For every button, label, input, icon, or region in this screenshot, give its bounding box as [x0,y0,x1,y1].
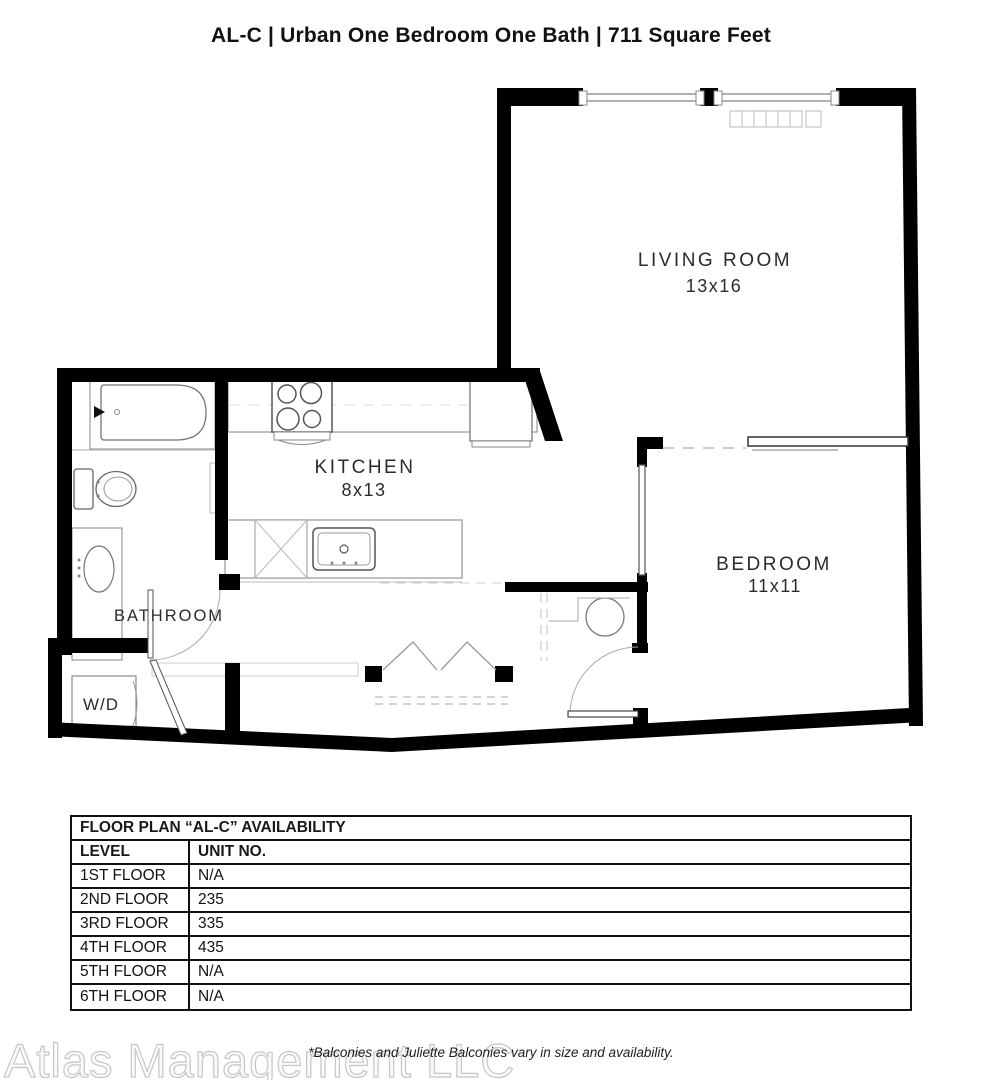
heater-box [806,111,821,127]
kitchen-sink-basin [318,533,370,565]
footnote-text: *Balconies and Juliette Balconies vary i… [0,1045,982,1060]
hall-shelf [152,663,358,676]
table-row: 5TH FLOOR N/A [72,961,910,985]
wall-vestibule-right [637,592,647,647]
level-cell: 2ND FLOOR [72,889,190,911]
toilet-bowl-inner [104,477,132,501]
stove-front-curve [278,440,326,445]
unit-cell: 335 [190,913,910,935]
bathroom-label: BATHROOM [114,607,224,625]
vanity-dot [78,567,81,570]
wall-bath-bottom [48,638,148,653]
stove [272,377,332,432]
window-cap [579,91,587,105]
wall-lr-left [497,88,511,368]
refrigerator [470,377,532,441]
entry-door-swing [570,647,638,715]
availability-table: FLOOR PLAN “AL-C” AVAILABILITY LEVEL UNI… [70,815,912,1011]
unit-cell: 235 [190,889,910,911]
window-cap [831,91,839,105]
wall-door-jamb [632,643,648,653]
living-room-label: LIVING ROOM [638,250,792,271]
column-header-level: LEVEL [72,841,190,863]
kitchen-label: KITCHEN [315,457,416,478]
toilet-bolt [97,495,100,498]
wall-bedroom-left-upper [637,445,647,467]
stove-front [274,432,330,440]
level-cell: 1ST FLOOR [72,865,190,887]
entry-wall-lines [549,598,630,621]
unit-cell: 435 [190,937,910,959]
wall-vestibule-top [505,582,648,592]
unit-cell: N/A [190,985,910,1009]
window-cap [696,91,704,105]
table-title: FLOOR PLAN “AL-C” AVAILABILITY [72,819,346,837]
water-heater [586,598,624,636]
kitchen-dims: 8x13 [341,480,386,500]
level-cell: 4TH FLOOR [72,937,190,959]
entry-door-leaf [568,711,638,717]
living-room-dims: 13x16 [686,276,743,296]
bathtub [101,385,206,440]
refrigerator-handle [472,441,530,447]
wall-bedroom-left-mid [637,573,647,595]
vanity-basin [84,546,114,592]
wall-bath-kitchen-divider [215,368,228,560]
level-cell: 3RD FLOOR [72,913,190,935]
vanity-dot [78,559,81,562]
table-row: 6TH FLOOR N/A [72,985,910,1009]
room-labels: LIVING ROOM 13x16 KITCHEN 8x13 BEDROOM 1… [83,250,832,714]
table-row: 4TH FLOOR 435 [72,937,910,961]
table-title-row: FLOOR PLAN “AL-C” AVAILABILITY [72,817,910,841]
table-header-row: LEVEL UNIT NO. [72,841,910,865]
level-cell: 6TH FLOOR [72,985,190,1009]
unit-cell: N/A [190,961,910,983]
window-cap [714,91,722,105]
wall-right [902,88,923,726]
table-row: 1ST FLOOR N/A [72,865,910,889]
toilet-tank [74,469,93,509]
bedroom-glass-panel [639,465,645,575]
faucet-dot [331,562,334,565]
wall-stub-bifold-right [495,666,513,682]
level-cell: 5TH FLOOR [72,961,190,983]
bifold-door [441,642,496,670]
bifold-door [383,642,437,670]
table-row: 3RD FLOOR 335 [72,913,910,937]
faucet-dot [355,562,358,565]
wall-stub-bifold-left [365,666,382,682]
vanity-dot [78,575,81,578]
wall-stub-bath-door [219,574,240,590]
flyer-page: AL-C | Urban One Bedroom One Bath | 711 … [0,0,982,1080]
bathroom-door-swing [150,590,220,660]
faucet-dot [343,562,346,565]
bedroom-dims: 11x11 [748,576,802,596]
wall-bath-left [57,368,72,655]
wd-label: W/D [83,695,119,714]
wall-closet-left [225,663,240,740]
unit-cell: N/A [190,865,910,887]
table-row: 2ND FLOOR 235 [72,889,910,913]
column-header-unit: UNIT NO. [190,841,910,863]
wall-kitchen-top [57,368,540,382]
toilet-bolt [97,481,100,484]
bedroom-sliding-door-panel [748,437,908,446]
bedroom-label: BEDROOM [716,554,832,575]
